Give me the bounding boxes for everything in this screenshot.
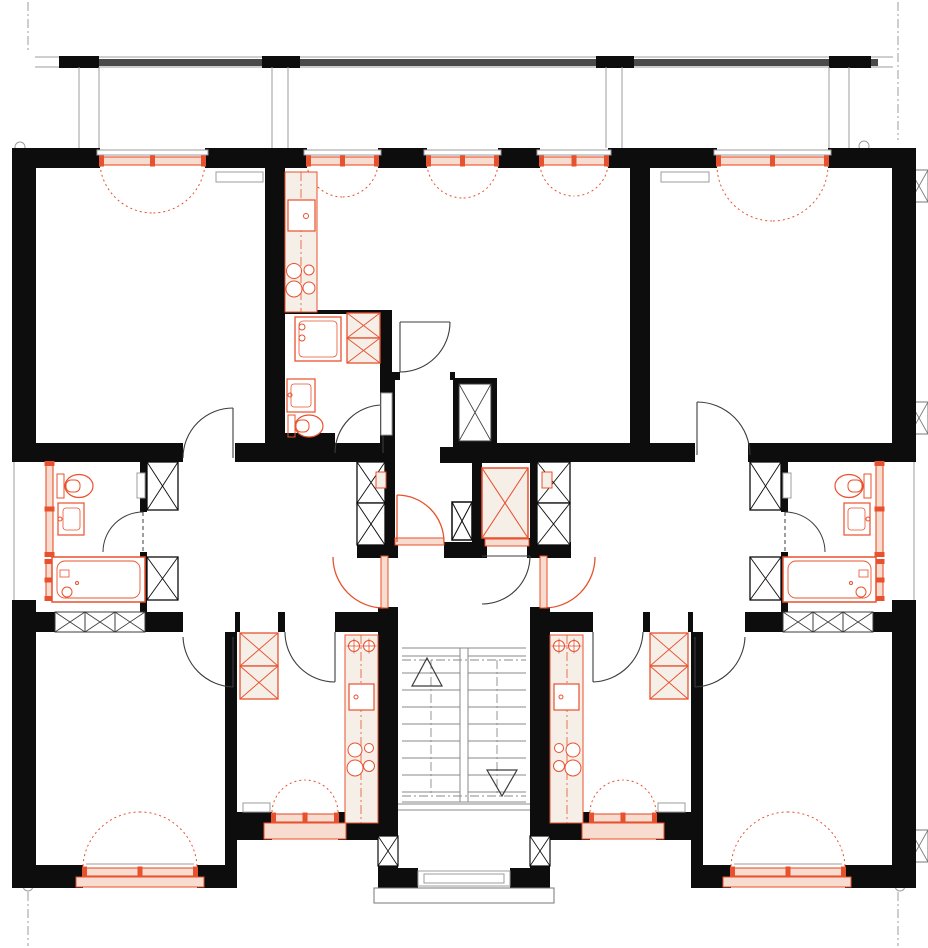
interior-wall [630, 168, 650, 443]
door-swing [183, 408, 233, 458]
stair-wall [530, 607, 550, 632]
duct-shaft [147, 462, 178, 510]
window-sill [97, 150, 208, 155]
duct-shaft [147, 557, 178, 600]
exterior-wall [892, 600, 916, 888]
door-swing [400, 322, 450, 372]
oven [554, 684, 579, 710]
bathtub [52, 557, 145, 602]
window-swing-dotted [623, 780, 656, 812]
duct-shaft-orange [240, 666, 278, 699]
interior-wall [265, 168, 285, 443]
exterior-window-sill [723, 877, 851, 887]
oven [288, 200, 315, 231]
balcony-partition-wall [596, 56, 634, 68]
apartment-entry-door [381, 556, 388, 608]
interior-wall [145, 612, 183, 632]
door-swing [593, 632, 643, 682]
door-threshold [395, 538, 444, 545]
door-swing [697, 402, 750, 455]
balcony-partition-wall [829, 56, 871, 68]
toilet-bowl [65, 475, 93, 498]
door-swing [482, 556, 530, 604]
interior-wall [643, 612, 650, 632]
cooktop-burner [287, 264, 302, 279]
interior-wall [235, 443, 385, 462]
stair-up-arrow [412, 658, 442, 686]
window-band [589, 813, 657, 824]
window-swing-dotted [83, 812, 140, 866]
wardrobe-unit [55, 612, 85, 632]
window-swing-dotted [772, 165, 828, 221]
wardrobe-unit [85, 612, 115, 632]
wardrobe-unit [813, 612, 843, 632]
cooktop-burner [364, 761, 375, 772]
interior-wall [748, 443, 916, 462]
entry-canopy [374, 888, 554, 903]
elevator-shaft-wall [472, 463, 482, 546]
balcony-railing [66, 59, 878, 66]
window-sill [537, 150, 611, 155]
balcony-door-band [716, 156, 829, 167]
cooktop-burner [303, 282, 315, 294]
window-band [271, 813, 339, 824]
interior-wall [550, 612, 593, 632]
window-band [875, 461, 885, 557]
door-swing [397, 495, 444, 542]
door-swing [544, 557, 595, 608]
window-swing-dotted [305, 780, 338, 812]
window-swing-dotted [427, 165, 463, 198]
exterior-wall [498, 148, 540, 168]
wardrobe-unit [115, 612, 145, 632]
cooktop-burner [566, 743, 580, 757]
core-wall [444, 542, 487, 558]
cooktop-burner [348, 743, 362, 757]
window-swing-dotted [574, 165, 608, 196]
elevator-car [482, 468, 528, 538]
balcony-partition-wall [262, 56, 300, 68]
window-swing-dotted [590, 780, 623, 812]
window-swing-dotted [140, 812, 197, 866]
interior-wall [225, 632, 237, 865]
duct-shaft [530, 836, 550, 866]
exterior-wall [12, 600, 36, 888]
interior-wall [12, 612, 55, 632]
layer-balcony [35, 56, 893, 148]
window-swing-dotted [731, 812, 788, 866]
duct-shaft-orange [542, 472, 552, 488]
door-swing [785, 512, 825, 552]
toilet-bowl [835, 475, 863, 498]
elevator-door-threshold [485, 539, 529, 546]
cooktop-burner [555, 744, 564, 753]
elevator-shaft-wall [440, 447, 543, 463]
door-swing [103, 512, 143, 552]
window-swing-dotted [540, 165, 574, 196]
window-band [306, 156, 379, 167]
window-sill [424, 150, 501, 155]
apartment-entry-door [540, 556, 547, 608]
exterior-wall [378, 148, 427, 168]
window-swing-dotted [342, 165, 378, 197]
radiator [137, 473, 145, 498]
window-swing-dotted [788, 812, 845, 866]
cooktop-burner [565, 760, 581, 776]
toilet-cistern [864, 474, 871, 498]
interior-wall [335, 612, 378, 632]
duct-shaft [750, 462, 781, 510]
radiator [658, 803, 685, 812]
duct-shaft-orange [650, 666, 688, 699]
window-swing-dotted [100, 165, 152, 213]
radiator [381, 393, 392, 435]
entry-door [424, 874, 504, 883]
radiator [661, 172, 709, 182]
duct-shaft-orange [347, 338, 380, 363]
exterior-wall [892, 148, 916, 462]
cooktop-burner [365, 744, 374, 753]
duct-shaft-orange [347, 313, 380, 338]
interior-wall [745, 612, 783, 632]
interior-wall [873, 612, 916, 632]
window-band [99, 156, 206, 167]
window-band [82, 867, 198, 878]
exterior-wall [378, 868, 418, 888]
cooktop-burner [554, 761, 565, 772]
floor-plan-svg [0, 0, 928, 948]
radiator [216, 172, 263, 182]
wardrobe-unit [843, 612, 873, 632]
door-swing [333, 557, 384, 608]
oven [349, 684, 374, 710]
exterior-wall [12, 865, 83, 888]
window-swing-dotted [152, 165, 205, 213]
duct-shaft [452, 502, 472, 540]
floor-plan-canvas [0, 0, 928, 948]
cooktop-burner [286, 281, 302, 297]
interior-wall [235, 612, 240, 632]
bathroom-wall [380, 310, 392, 363]
duct-shaft [459, 384, 491, 441]
stair-wall [378, 632, 398, 870]
window-swing-dotted [717, 165, 772, 221]
balcony-door-band [426, 156, 499, 167]
toilet-cistern [57, 474, 64, 498]
door-swing [285, 632, 335, 682]
window-band [730, 867, 846, 878]
window-sill [304, 150, 381, 155]
kitchen-counter [345, 635, 378, 823]
layer-stair-core [374, 648, 554, 903]
exterior-window-sill [76, 877, 204, 887]
exterior-wall [205, 148, 307, 168]
duct-shaft-orange [650, 633, 688, 666]
exterior-wall [510, 868, 550, 888]
radiator [243, 803, 270, 812]
exterior-wall [608, 148, 717, 168]
duct-shaft [750, 557, 781, 600]
exterior-window-sill [582, 823, 664, 839]
bathtub [783, 557, 876, 602]
exterior-wall [845, 865, 916, 888]
window-swing-dotted [463, 165, 498, 198]
window-band [539, 156, 609, 167]
cooktop-burner [304, 265, 314, 275]
exterior-wall [12, 148, 36, 462]
duct-shaft-orange [240, 633, 278, 666]
window-band [45, 461, 55, 557]
duct-shaft-orange [376, 472, 386, 488]
balcony-partition-wall [59, 56, 99, 68]
interior-wall [691, 632, 703, 865]
window-swing-dotted [272, 780, 305, 812]
radiator [783, 473, 791, 498]
duct-shaft [537, 503, 570, 545]
duct-shaft [357, 503, 385, 545]
wardrobe-unit [783, 612, 813, 632]
duct-shaft [378, 836, 398, 866]
corridor-wall [392, 372, 400, 380]
interior-wall [12, 443, 183, 462]
kitchen-counter [550, 635, 583, 823]
interior-wall [688, 612, 693, 632]
exterior-window-sill [264, 823, 346, 839]
cooktop-burner [347, 760, 363, 776]
stair-wall [530, 632, 550, 870]
window-sill [714, 150, 831, 155]
interior-wall [278, 612, 285, 632]
stair-center-rail [460, 648, 468, 802]
stair-wall [378, 607, 398, 632]
